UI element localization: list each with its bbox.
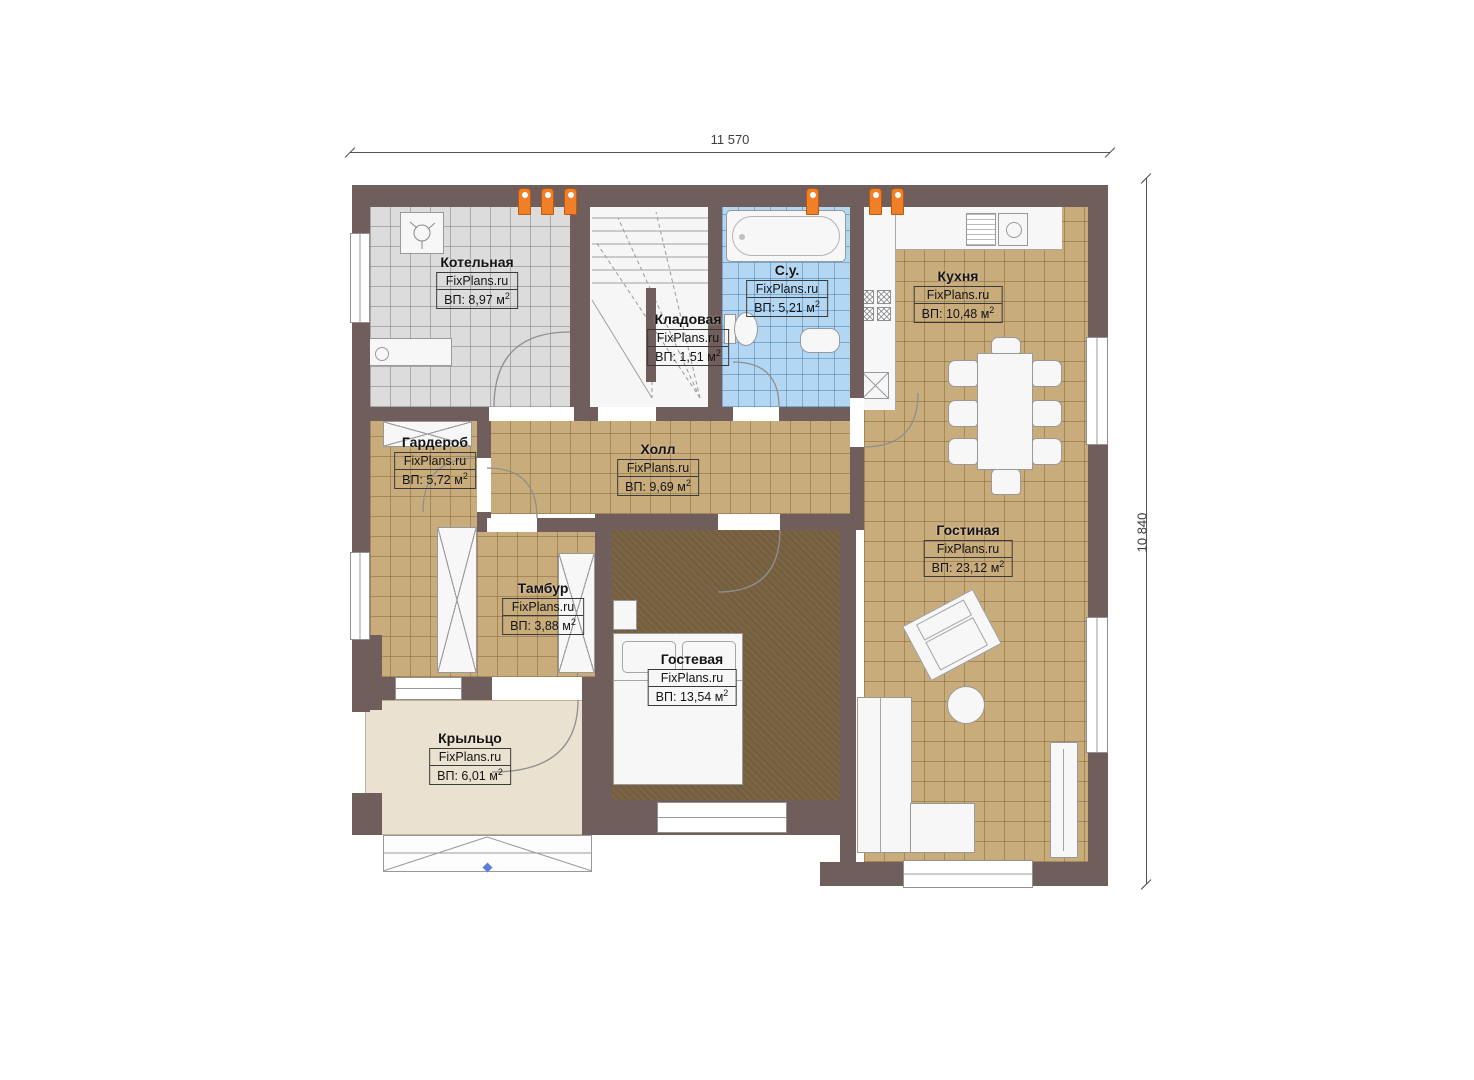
- watermark: FixPlans.ru: [747, 281, 827, 297]
- bathtub-inner: [732, 216, 840, 256]
- flue-icon: [806, 188, 819, 215]
- watermark: FixPlans.ru: [437, 273, 517, 289]
- porch-pillar: [352, 793, 382, 835]
- sofa-chaise: [910, 803, 975, 853]
- room-label-kuhnya: Кухня FixPlans.ru ВП: 10,48 м2: [914, 268, 1003, 323]
- closet-garderob-tall: [437, 527, 477, 673]
- window-kotelnaya: [350, 233, 370, 323]
- dining-chair: [948, 360, 978, 387]
- dining-chair: [948, 438, 978, 465]
- room-label-garderob: Гардероб FixPlans.ru ВП: 5,72 м2: [394, 434, 476, 489]
- room-area: ВП: 13,54 м2: [649, 686, 736, 705]
- tv-stand-line: [1063, 749, 1064, 851]
- stove-burner: [877, 290, 891, 304]
- bathroom-sink: [800, 328, 840, 353]
- dimension-line-top: [350, 152, 1110, 153]
- counter-sink-circle: [375, 347, 389, 361]
- door-opening-su: [733, 407, 779, 421]
- porch-pillar: [352, 635, 382, 710]
- boiler-glyph: [401, 213, 443, 253]
- room-area: ВП: 5,21 м2: [747, 297, 827, 316]
- staircase-floor: [590, 207, 708, 407]
- wall-stairs-left: [570, 185, 590, 421]
- room-title: Холл: [617, 441, 699, 457]
- wall-right: [1088, 185, 1108, 886]
- room-area: ВП: 9,69 м2: [618, 476, 698, 495]
- opening-stairs-hall: [598, 407, 656, 421]
- window-garderob: [350, 552, 370, 640]
- wall-su-kitchen-upper: [850, 185, 864, 398]
- door-opening-tambur: [487, 518, 537, 532]
- kitchen-sink-rack: [966, 213, 996, 246]
- room-label-gostinaya: Гостиная FixPlans.ru ВП: 23,12 м2: [924, 522, 1013, 577]
- room-title: Крыльцо: [429, 730, 511, 746]
- dimension-width-label: 11 570: [711, 132, 750, 147]
- dining-chair: [1032, 360, 1062, 387]
- flue-icon: [518, 188, 531, 215]
- tv-stand: [1050, 742, 1078, 858]
- watermark: FixPlans.ru: [430, 749, 510, 765]
- flue-icon: [564, 188, 577, 215]
- watermark: FixPlans.ru: [915, 287, 1002, 303]
- dining-chair: [991, 468, 1021, 495]
- door-opening-kotelnaya: [489, 407, 574, 421]
- window-garderob-porch: [395, 677, 462, 700]
- wall-top: [352, 185, 1108, 207]
- stove-burner: [877, 307, 891, 321]
- wall-gostevaya-left: [595, 514, 612, 835]
- door-opening-entry: [492, 677, 582, 700]
- dining-table: [977, 353, 1033, 470]
- dining-chair: [1032, 400, 1062, 427]
- room-title: Кладовая: [647, 311, 729, 327]
- room-label-gostevaya: Гостевая FixPlans.ru ВП: 13,54 м2: [648, 651, 737, 706]
- door-opening-gostevaya: [718, 514, 780, 530]
- room-area: ВП: 10,48 м2: [915, 303, 1002, 322]
- watermark: FixPlans.ru: [503, 599, 583, 615]
- flue-icon: [891, 188, 904, 215]
- kitchen-hatch-box: [862, 372, 889, 399]
- room-title: Гостиная: [924, 522, 1013, 538]
- nightstand: [613, 600, 637, 630]
- wall-stairs-right: [708, 185, 722, 421]
- bathtub: [726, 210, 846, 262]
- room-area: ВП: 6,01 м2: [430, 765, 510, 784]
- watermark: FixPlans.ru: [925, 541, 1012, 557]
- window-gostinaya-south: [903, 860, 1033, 888]
- watermark: FixPlans.ru: [649, 670, 736, 686]
- flue-icon: [541, 188, 554, 215]
- room-title: Гостевая: [648, 651, 737, 667]
- room-title: Котельная: [436, 254, 518, 270]
- room-area: ВП: 8,97 м2: [437, 289, 517, 308]
- room-label-kryltso: Крыльцо FixPlans.ru ВП: 6,01 м2: [429, 730, 511, 785]
- coffee-table-round: [947, 686, 985, 724]
- room-title: Тамбур: [502, 580, 584, 596]
- sofa-seat-line: [880, 698, 881, 852]
- room-label-kotelnaya: Котельная FixPlans.ru ВП: 8,97 м2: [436, 254, 518, 309]
- room-label-holl: Холл FixPlans.ru ВП: 9,69 м2: [617, 441, 699, 496]
- wall-gostevaya-right-lower: [840, 800, 856, 862]
- watermark: FixPlans.ru: [395, 453, 475, 469]
- room-label-tambur: Тамбур FixPlans.ru ВП: 3,88 м2: [502, 580, 584, 635]
- sink-bowl-circle: [1006, 222, 1022, 238]
- wall-gostevaya-right: [840, 530, 856, 800]
- flue-icon: [869, 188, 882, 215]
- bathtub-drain: [739, 234, 745, 240]
- opening-hall-living: [850, 398, 864, 447]
- room-label-su: С.у. FixPlans.ru ВП: 5,21 м2: [746, 262, 828, 317]
- room-area: ВП: 1,51 м2: [648, 346, 728, 365]
- dining-chair: [1032, 438, 1062, 465]
- room-area: ВП: 23,12 м2: [925, 557, 1012, 576]
- room-area: ВП: 3,88 м2: [503, 615, 583, 634]
- door-opening-garderob: [477, 458, 491, 512]
- room-title: Гардероб: [394, 434, 476, 450]
- floor-plan-canvas: Котельная FixPlans.ru ВП: 8,97 м2 Кладов…: [0, 0, 1474, 1080]
- watermark: FixPlans.ru: [618, 460, 698, 476]
- room-title: С.у.: [746, 262, 828, 278]
- sofa-back: [857, 697, 912, 853]
- room-area: ВП: 5,72 м2: [395, 469, 475, 488]
- room-title: Кухня: [914, 268, 1003, 284]
- dining-chair: [948, 400, 978, 427]
- dimension-height-label: 10 840: [1134, 513, 1149, 553]
- window-gostevaya-south: [657, 802, 787, 833]
- boiler-room-counter: [368, 338, 452, 366]
- window-dining: [1086, 337, 1108, 445]
- kitchen-sink-bowl: [998, 213, 1028, 246]
- room-label-kladovaya: Кладовая FixPlans.ru ВП: 1,51 м2: [647, 311, 729, 366]
- window-gostinaya: [1086, 617, 1108, 753]
- boiler-icon: [400, 212, 444, 254]
- watermark: FixPlans.ru: [648, 330, 728, 346]
